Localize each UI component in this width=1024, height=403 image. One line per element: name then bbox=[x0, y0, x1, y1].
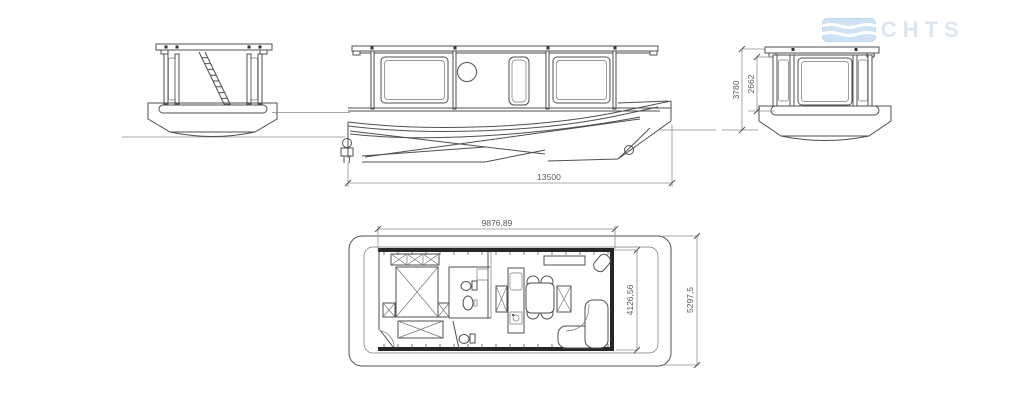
double-bed bbox=[396, 267, 438, 317]
deck-beam bbox=[159, 105, 267, 113]
dimension-cabin-length: 9876,89 bbox=[375, 218, 618, 251]
dimension-label: 4126,56 bbox=[625, 284, 635, 315]
dimension-inner-beam: 4126,56 bbox=[616, 247, 640, 353]
dimension-label: 5297,5 bbox=[685, 287, 695, 313]
door-swing bbox=[380, 330, 394, 347]
nightstand bbox=[438, 303, 449, 317]
deck-beam bbox=[771, 106, 879, 115]
dimension-label: 2662 bbox=[746, 74, 756, 93]
shower-tray bbox=[477, 269, 488, 280]
window bbox=[381, 57, 448, 103]
floor-plan-view: 9876,89 4126,56 5297,5 bbox=[349, 218, 700, 368]
nightstand bbox=[383, 303, 395, 317]
houseboat-blueprint: 13500 3780 266 bbox=[0, 0, 1024, 403]
dimension-label: 3780 bbox=[731, 80, 741, 99]
cabin-wall bbox=[378, 248, 614, 252]
ladder-icon bbox=[199, 52, 233, 110]
dimension-label: 13500 bbox=[537, 172, 561, 182]
dining-table bbox=[526, 283, 554, 313]
roof bbox=[352, 46, 658, 51]
window bbox=[798, 58, 852, 105]
galley bbox=[508, 268, 524, 333]
post bbox=[164, 54, 168, 104]
post bbox=[773, 55, 777, 106]
watermark: 2YACHTS bbox=[822, 18, 965, 42]
berth bbox=[398, 321, 443, 338]
window bbox=[859, 60, 868, 101]
galley-sink bbox=[510, 312, 522, 324]
dining-set bbox=[526, 276, 554, 319]
helm-seat bbox=[592, 252, 613, 274]
sink bbox=[463, 296, 477, 310]
window bbox=[251, 58, 258, 100]
blueprint-drawing: 13500 3780 266 bbox=[0, 0, 1024, 403]
outboard-motor bbox=[341, 139, 353, 164]
dimension-overall-beam: 5297,5 bbox=[663, 233, 700, 368]
toilet bbox=[461, 281, 477, 291]
counter bbox=[544, 256, 585, 265]
side-elevation-view: 13500 bbox=[341, 46, 675, 187]
cabinet bbox=[496, 286, 507, 312]
waterline bbox=[122, 113, 758, 138]
bathroom bbox=[449, 252, 491, 318]
hull bbox=[341, 101, 671, 163]
roof bbox=[156, 44, 272, 50]
dimension-label: 9876,89 bbox=[482, 218, 513, 228]
cabin-wall bbox=[610, 248, 614, 351]
post bbox=[371, 51, 374, 109]
bow-elevation-view: 3780 2662 bbox=[731, 46, 891, 141]
dimension-height-2662: 2662 bbox=[746, 54, 775, 114]
window bbox=[169, 58, 176, 100]
porthole bbox=[458, 63, 477, 82]
window bbox=[553, 57, 610, 103]
bow-porthole bbox=[625, 146, 634, 155]
roof bbox=[765, 47, 879, 53]
flag-icon bbox=[822, 18, 876, 42]
window bbox=[779, 60, 789, 101]
cabinet bbox=[557, 286, 571, 312]
toilet bbox=[459, 335, 469, 344]
wc bbox=[453, 321, 475, 349]
wardrobe bbox=[391, 254, 439, 265]
appliance bbox=[510, 273, 522, 290]
stern-elevation-view bbox=[148, 44, 277, 137]
